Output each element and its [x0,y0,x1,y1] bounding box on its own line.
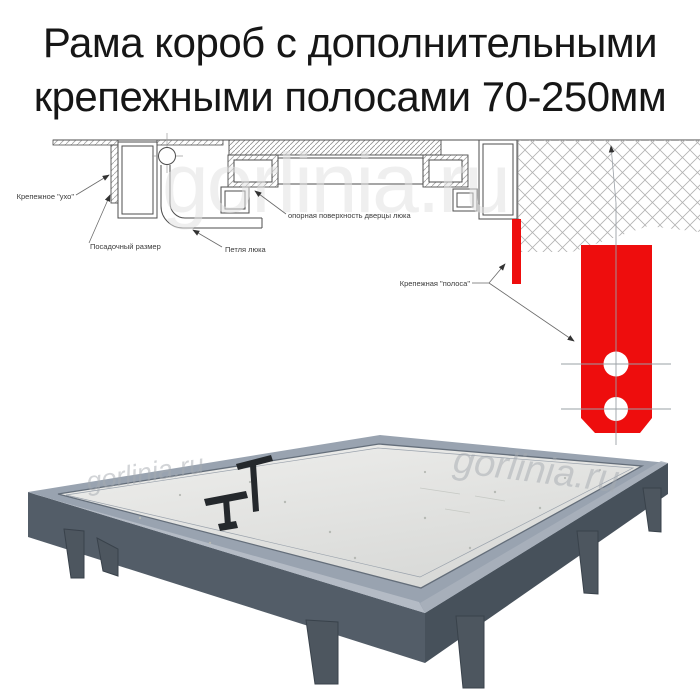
mounting-strip-leg-6 [643,488,661,532]
leader-mounting-strip-2 [489,283,574,341]
leader-seating-size [89,195,110,243]
mounting-strip-leg-4 [456,616,484,688]
mounting-strip-leg-1 [64,529,84,578]
leader-hatch-hinge [193,230,222,247]
label-mounting-ear: Крепежное "ухо" [17,192,75,201]
wall-section [518,140,700,252]
ceiling-bar-left-a [53,140,118,145]
product-illustration: gorlinia.ru Крепежное "ухо" Посадочный р… [0,0,700,700]
leader-mounting-ear [76,175,109,195]
label-hatch-hinge: Петля люка [225,245,267,254]
label-mounting-strip: Крепежная "полоса" [400,279,471,288]
leader-mounting-strip-1 [472,264,505,283]
mounting-strip-leg-5 [577,531,598,594]
mounting-strip-leg-3 [306,620,338,684]
label-door-support-surface: опорная поверхность дверцы люка [288,211,411,220]
technical-diagram: gorlinia.ru Крепежное "ухо" Посадочный р… [17,133,700,445]
mounting-strip-red [512,219,521,284]
product-photo: gorlinia.ru gorlinia.ru [28,435,668,688]
frame-profile-left-inner [122,146,153,214]
mounting-ear-strip [111,145,118,203]
mounting-strip-detail [581,245,652,433]
label-seating-size: Посадочный размер [90,242,161,251]
